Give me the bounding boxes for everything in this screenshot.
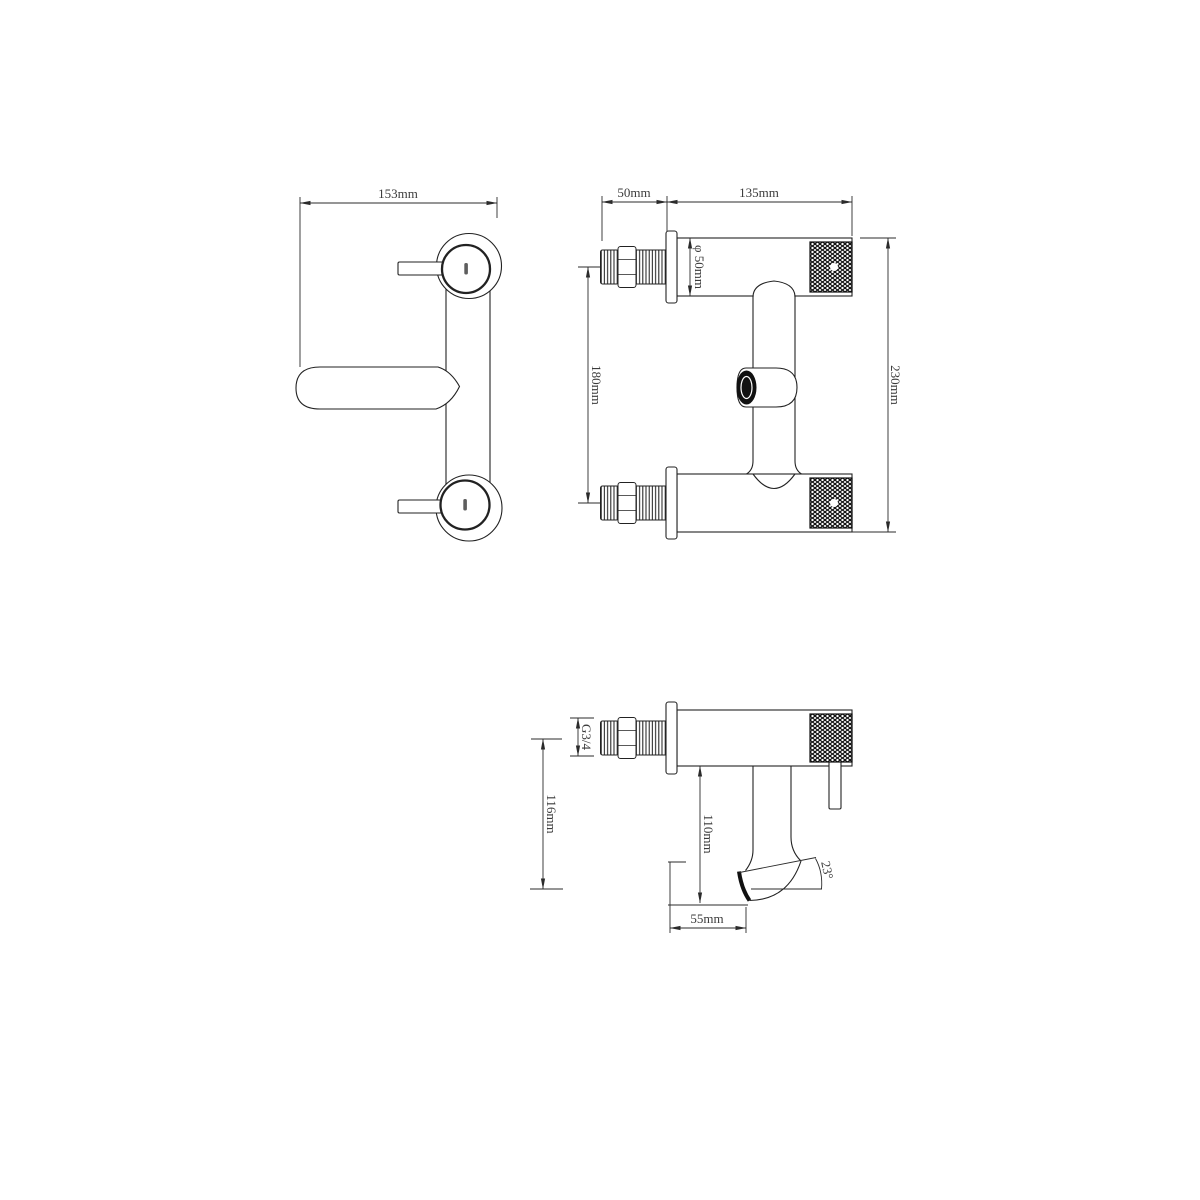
dim-label-50: 50mm — [617, 185, 650, 200]
handle-dot — [830, 499, 838, 507]
spout-profile-view: G3/4 116mm 110mm 55mm 23° — [530, 702, 852, 933]
dimension-body-length: 135mm — [667, 185, 852, 202]
dimension-spout-reach: 55mm — [668, 862, 746, 933]
knurled-handle — [810, 714, 852, 762]
dim-label-55: 55mm — [690, 911, 723, 926]
handle-lever-down — [829, 756, 841, 809]
dim-label-23deg: 23° — [818, 860, 836, 881]
handle-slot — [464, 263, 468, 275]
dimension-spout-drop: 110mm — [668, 766, 748, 905]
handle-top — [398, 234, 502, 299]
spout-left-edge — [746, 766, 754, 871]
spout-right-edge — [791, 766, 801, 861]
drawing-canvas: 153mm 50mm — [0, 0, 1200, 1200]
side-view: 50mm 135mm φ 50mm 180mm 230mm — [578, 185, 903, 539]
technical-drawing: 153mm 50mm — [0, 0, 1200, 1200]
dimension-thread-length: 50mm — [602, 185, 852, 241]
dim-label-116: 116mm — [544, 794, 559, 833]
dim-label-dia50: φ 50mm — [692, 245, 707, 289]
spout-front — [296, 367, 460, 409]
pipe-fillets — [747, 461, 802, 474]
spout-outlet-opening — [737, 371, 757, 405]
dimension-spout-angle: 23° — [751, 859, 837, 890]
handle-dot — [830, 263, 838, 271]
dim-label-g34: G3/4 — [579, 724, 594, 751]
dim-label-230: 230mm — [888, 365, 903, 405]
dim-label-110: 110mm — [701, 814, 716, 853]
front-view: 153mm — [296, 186, 502, 541]
spout-outlet-arc — [750, 861, 802, 901]
handle-slot — [463, 499, 467, 511]
dim-label-135: 135mm — [739, 185, 779, 200]
dimension-body-diameter: φ 50mm — [690, 238, 707, 296]
dimension-axis-to-outlet: 116mm — [530, 739, 563, 889]
dim-label-153: 153mm — [378, 186, 418, 201]
dim-label-180: 180mm — [589, 365, 604, 405]
dimension-thread-size: G3/4 — [570, 718, 594, 756]
spout-outlet-rim — [739, 872, 750, 901]
dimension-inlet-spacing: 180mm — [578, 267, 604, 503]
handle-bottom — [398, 475, 502, 541]
dimension-overall-height: 230mm — [850, 238, 903, 532]
